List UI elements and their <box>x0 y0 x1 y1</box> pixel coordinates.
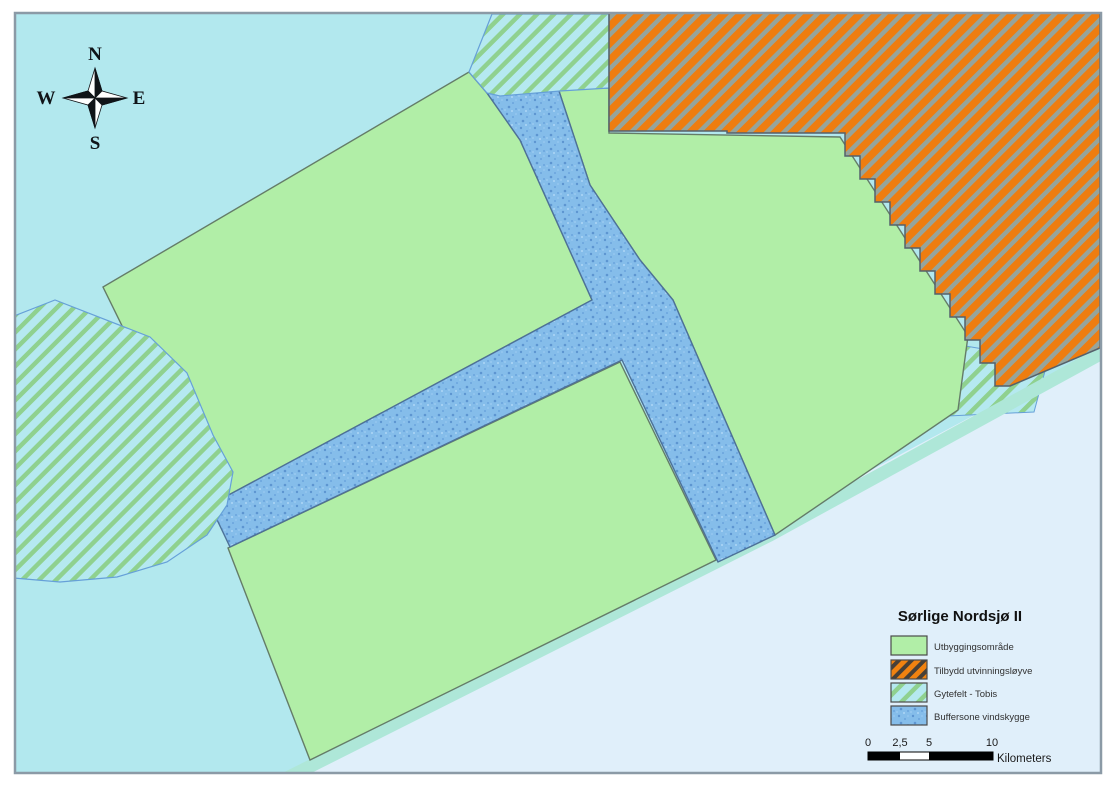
compass-east-label: E <box>133 88 146 109</box>
scale-tick-5: 5 <box>926 737 932 749</box>
scale-unit-label: Kilometers <box>997 753 1052 765</box>
scale-bar-segment-2 <box>929 752 993 760</box>
compass-north-label: N <box>88 44 102 65</box>
scale-tick-0: 0 <box>865 737 871 749</box>
legend-title: Sørlige Nordsjø II <box>898 608 1022 625</box>
scale-bar-segment-1 <box>868 752 900 760</box>
legend-label-buffersone: Buffersone vindskygge <box>934 712 1030 723</box>
legend-swatch-utvinningsloyve <box>891 660 927 679</box>
spawning-area-top <box>469 14 609 96</box>
legend-swatch-buffersone <box>891 706 927 725</box>
legend-swatch-utbyggingsomrade <box>891 636 927 655</box>
scale-tick-10: 10 <box>986 737 998 749</box>
compass-south-label: S <box>90 133 101 154</box>
map-figure: N W E S Sørlige Nordsjø II Utbyggingsomr… <box>0 0 1119 790</box>
legend-label-utbyggingsomrade: Utbyggingsområde <box>934 642 1014 653</box>
map-canvas: N W E S Sørlige Nordsjø II Utbyggingsomr… <box>0 0 1119 790</box>
legend-label-utvinningsloyve: Tilbydd utvinningsløyve <box>934 666 1032 677</box>
legend-swatch-gytefelt <box>891 683 927 702</box>
scale-tick-2-5: 2,5 <box>892 737 907 749</box>
compass-west-label: W <box>37 88 56 109</box>
legend-label-gytefelt: Gytefelt - Tobis <box>934 689 997 700</box>
